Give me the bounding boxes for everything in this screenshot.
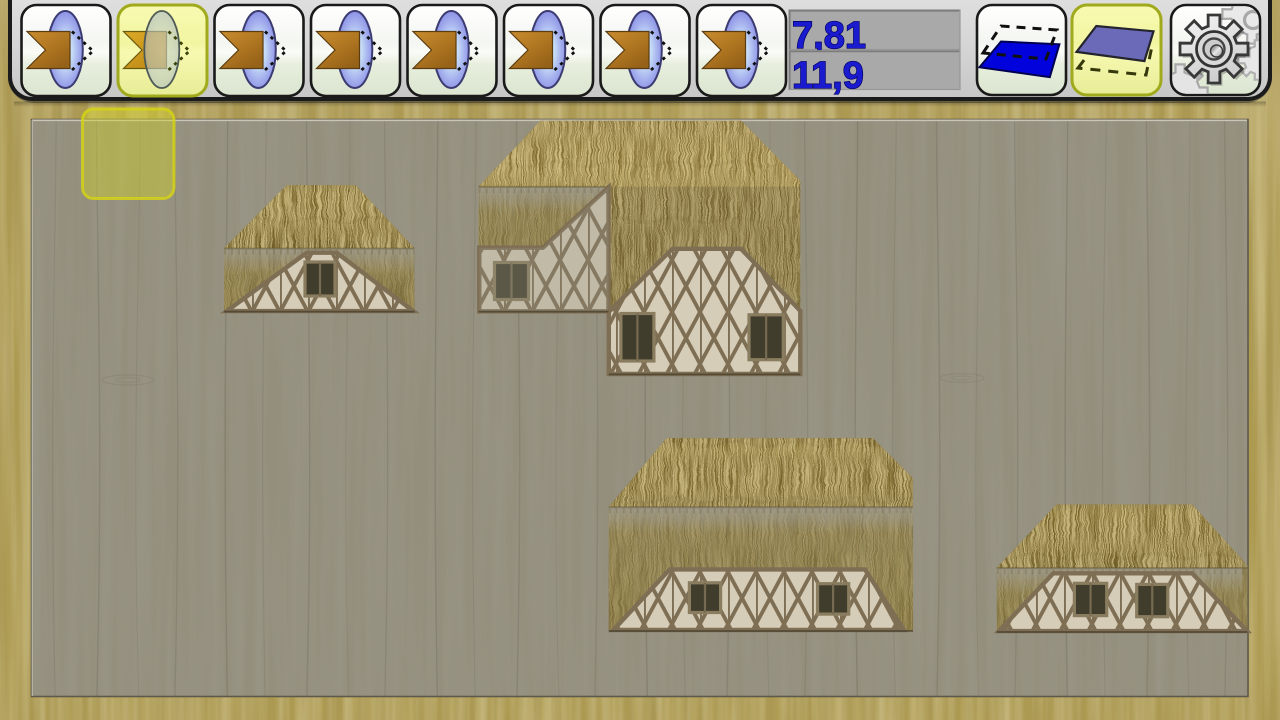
svg-text:11,9: 11,9 [792,55,864,97]
